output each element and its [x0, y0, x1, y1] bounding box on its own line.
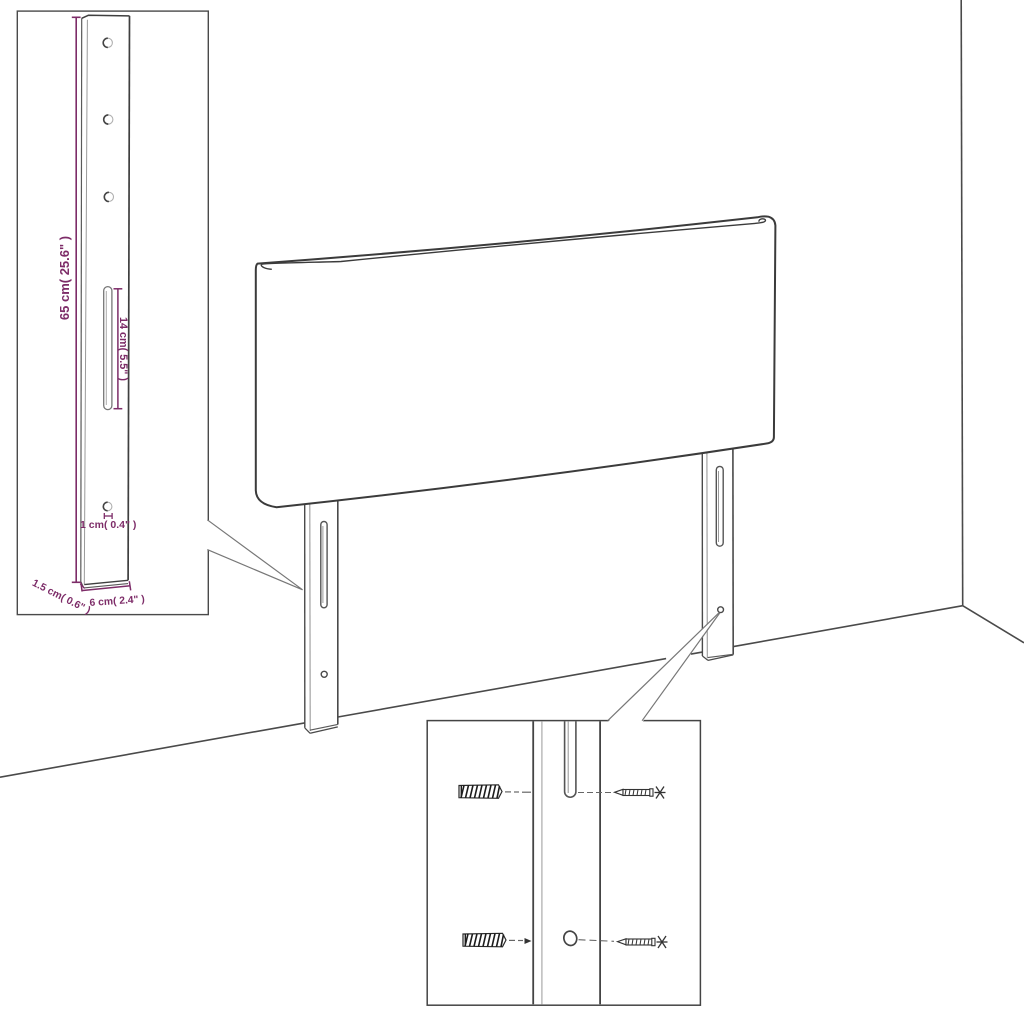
svg-text:65 cm( 25.6" ): 65 cm( 25.6" ) — [57, 236, 72, 320]
svg-text:14 cm( 5.5" ): 14 cm( 5.5" ) — [117, 317, 129, 381]
svg-text:1 cm( 0.4" ): 1 cm( 0.4" ) — [80, 519, 136, 531]
